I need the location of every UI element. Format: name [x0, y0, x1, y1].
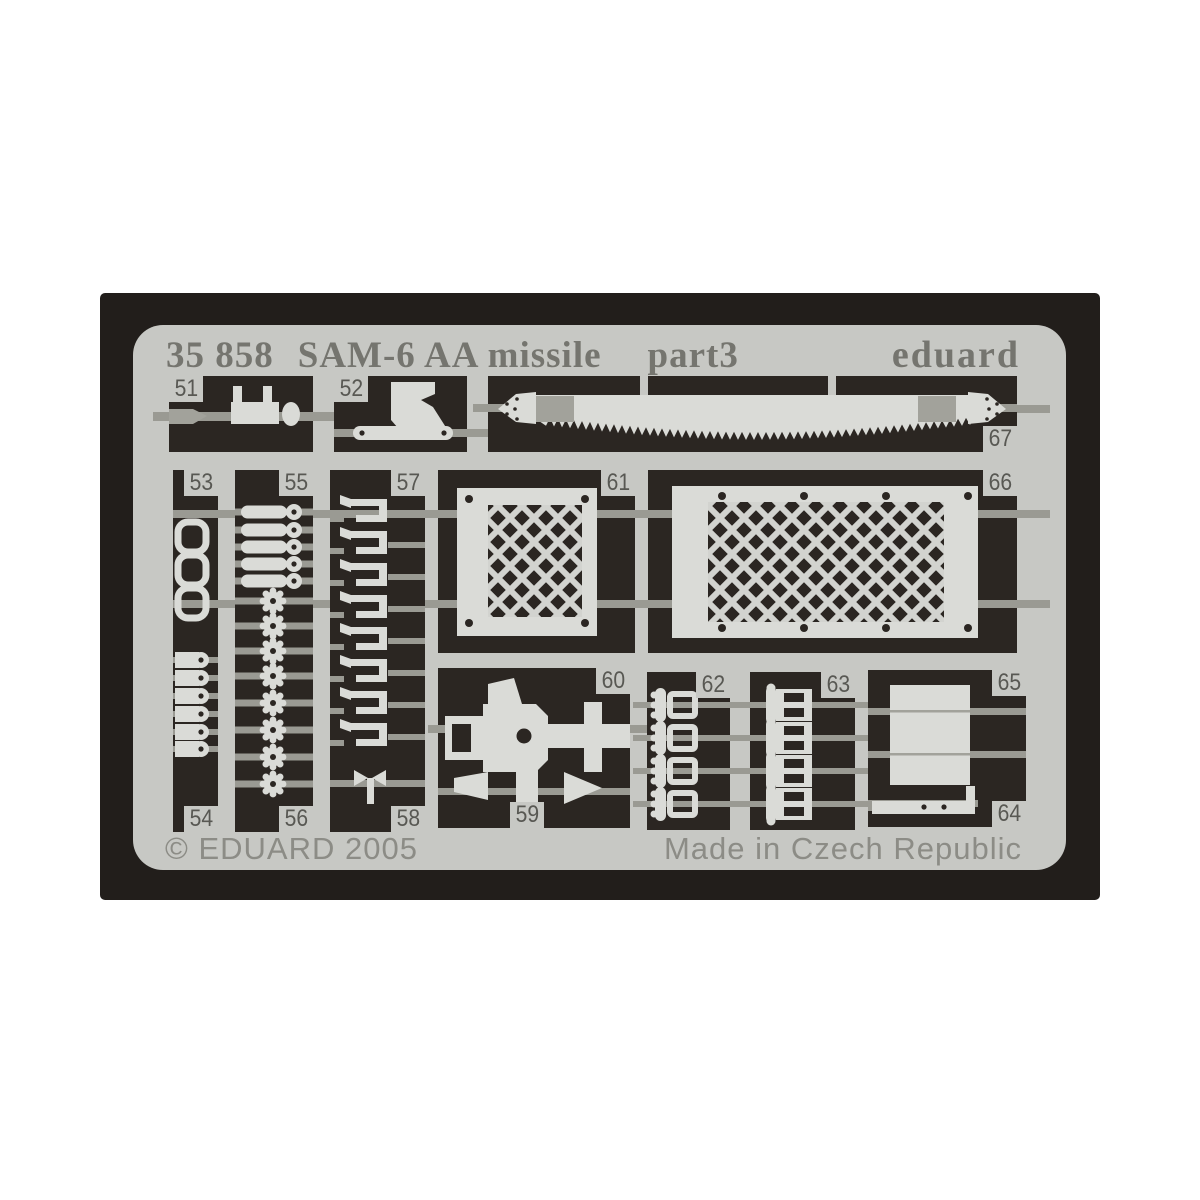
- runner-bar: [635, 600, 648, 608]
- part-number-tab-64: 64: [992, 801, 1026, 827]
- part-number-tab-58: 58: [391, 806, 425, 832]
- part-number: 64: [997, 801, 1020, 827]
- rectangular-mesh-screen-part: [672, 486, 978, 638]
- runner-bar: [855, 801, 868, 807]
- catalog-number: 35 858: [166, 334, 274, 377]
- part-label: part3: [648, 334, 739, 377]
- fret-header: 35 858 SAM-6 AA missile part3 eduard: [166, 333, 1020, 377]
- runner-bar: [633, 768, 647, 774]
- part-number-tab-59: 59: [510, 802, 544, 828]
- angled-bracket-part: [353, 382, 453, 440]
- runner-bar: [467, 429, 488, 437]
- runner-bar: [730, 735, 750, 741]
- runner-bar: [425, 600, 438, 608]
- part-number-tab-54: 54: [184, 806, 218, 832]
- made-in-text: Made in Czech Republic: [664, 831, 1022, 867]
- runner-bar: [730, 702, 750, 708]
- panel-65-64: 65 64: [868, 670, 1026, 827]
- product-title: SAM-6 AA missile: [298, 334, 602, 377]
- panel-55-56: 55 56: [235, 470, 313, 832]
- panel-60-59: 60 59: [438, 668, 630, 828]
- panel-53-54: 53 54: [173, 470, 218, 832]
- part-number: 67: [988, 426, 1011, 452]
- part-number: 62: [701, 672, 724, 698]
- runner-bar: [153, 412, 169, 421]
- part-number: 63: [826, 672, 849, 698]
- part-number-tab-63: 63: [821, 672, 855, 698]
- runner-bar: [1017, 405, 1050, 413]
- part-number: 53: [189, 470, 212, 496]
- runner-bar: [473, 404, 488, 412]
- runner-bar: [730, 801, 750, 807]
- part-number: 66: [988, 470, 1011, 496]
- panel-62: 62: [647, 672, 730, 830]
- part-number-tab-55: 55: [279, 470, 313, 496]
- part-number-tab-66: 66: [983, 470, 1017, 496]
- runner-bar: [730, 768, 750, 774]
- product-photo: 35 858 SAM-6 AA missile part3 eduard: [0, 0, 1200, 1200]
- part-number: 54: [189, 806, 212, 832]
- part-number-tab-62: 62: [696, 672, 730, 698]
- runner-bar: [855, 702, 868, 708]
- runner-bar: [855, 735, 868, 741]
- part-number: 65: [997, 670, 1020, 696]
- runner-bar: [633, 801, 647, 807]
- brand-logo: eduard: [892, 333, 1020, 377]
- part-number: 52: [339, 376, 362, 402]
- part-number: 56: [284, 806, 307, 832]
- part-number: 55: [284, 470, 307, 496]
- copyright-text: © EDUARD 2005: [165, 831, 418, 867]
- runner-bar: [630, 725, 647, 733]
- runner-bar: [855, 768, 868, 774]
- photo-backdrop: 35 858 SAM-6 AA missile part3 eduard: [100, 293, 1100, 900]
- runner-bar: [633, 735, 647, 741]
- panel-57-58: 57 58: [330, 470, 425, 832]
- part-number: 51: [174, 376, 197, 402]
- panel-66: 66: [648, 470, 1017, 653]
- part-number-tab-67: 67: [983, 426, 1017, 452]
- runner-bar: [633, 702, 647, 708]
- runner-bar: [1017, 510, 1050, 518]
- sprocket-wheel-parts: [260, 588, 287, 798]
- part-number-tab-51: 51: [169, 376, 203, 402]
- part-number-tab-60: 60: [596, 668, 630, 694]
- double-buckle-parts: [766, 684, 812, 826]
- part-number-tab-57: 57: [391, 470, 425, 496]
- runner-bar: [428, 725, 438, 733]
- runner-bar: [218, 600, 235, 608]
- part-number-tab-65: 65: [992, 670, 1026, 696]
- box-panel-part: [890, 685, 970, 785]
- panel-63: 63: [750, 672, 855, 830]
- latch-pin-parts: [175, 652, 209, 757]
- part-number: 60: [601, 668, 624, 694]
- panel-61: 61: [438, 470, 635, 653]
- runner-bar: [635, 510, 648, 518]
- part-number: 59: [515, 802, 538, 828]
- photo-etch-fret-plate: 35 858 SAM-6 AA missile part3 eduard: [133, 325, 1066, 870]
- panel-51: 51: [169, 376, 313, 452]
- runner-bar: [1017, 600, 1050, 608]
- part-number-tab-52: 52: [334, 376, 368, 402]
- saw-blade-part: [498, 392, 1006, 440]
- runner-bar: [313, 510, 330, 518]
- runner-bar: [313, 600, 330, 608]
- part-number-tab-61: 61: [601, 470, 635, 496]
- etch-bridge: [640, 376, 648, 396]
- runner-bar: [425, 510, 438, 518]
- panel-52: 52: [334, 376, 467, 452]
- handle-pin-parts: [241, 504, 302, 589]
- part-number: 58: [396, 806, 419, 832]
- panel-67: 67: [488, 376, 1017, 452]
- spring-clip-parts: [340, 495, 387, 746]
- part-number-tab-53: 53: [184, 470, 218, 496]
- runner-bar: [313, 412, 334, 421]
- square-mesh-screen-part: [457, 488, 597, 636]
- part-number: 57: [396, 470, 419, 496]
- etch-bridge: [828, 376, 836, 396]
- part-number: 61: [606, 470, 629, 496]
- part-number-tab-56: 56: [279, 806, 313, 832]
- runner-bar: [218, 510, 235, 518]
